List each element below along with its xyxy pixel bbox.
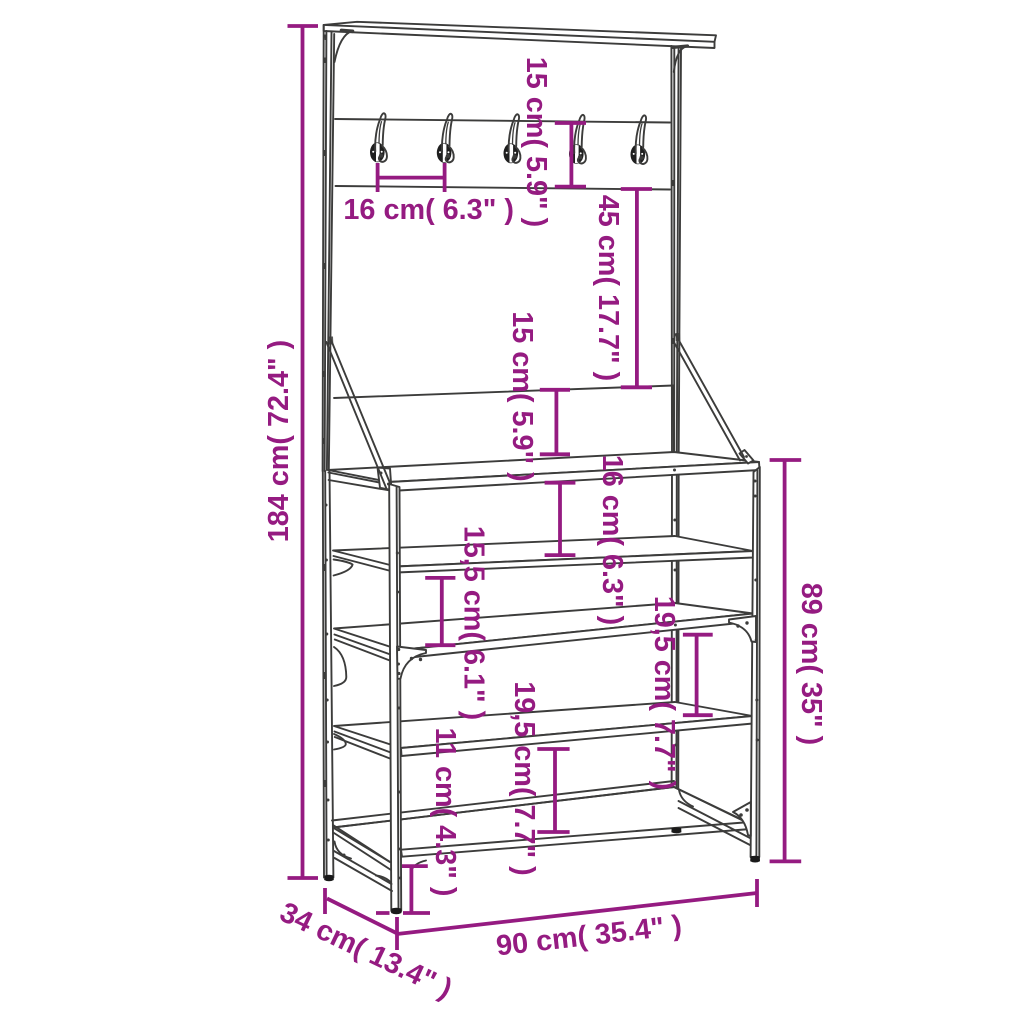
svg-text:19,5 cm( 7.7" ): 19,5 cm( 7.7" )	[508, 681, 540, 876]
svg-text:19,5 cm( 7.7" ): 19,5 cm( 7.7" )	[648, 596, 680, 791]
svg-text:184 cm( 72.4" ): 184 cm( 72.4" )	[263, 340, 295, 543]
svg-text:16 cm( 6.3" ): 16 cm( 6.3" )	[343, 194, 514, 226]
svg-text:15 cm( 5.9" ): 15 cm( 5.9" )	[506, 311, 538, 482]
svg-text:89 cm( 35" ): 89 cm( 35" )	[795, 583, 827, 746]
svg-text:45 cm( 17.7" ): 45 cm( 17.7" )	[592, 195, 624, 382]
svg-text:11 cm( 4.3" ): 11 cm( 4.3" )	[429, 728, 461, 897]
svg-text:16 cm( 6.3" ): 16 cm( 6.3" )	[596, 455, 628, 626]
svg-text:15 cm( 5.9" ): 15 cm( 5.9" )	[520, 57, 552, 228]
svg-text:15,5 cm( 6.1" ): 15,5 cm( 6.1" )	[458, 526, 490, 721]
